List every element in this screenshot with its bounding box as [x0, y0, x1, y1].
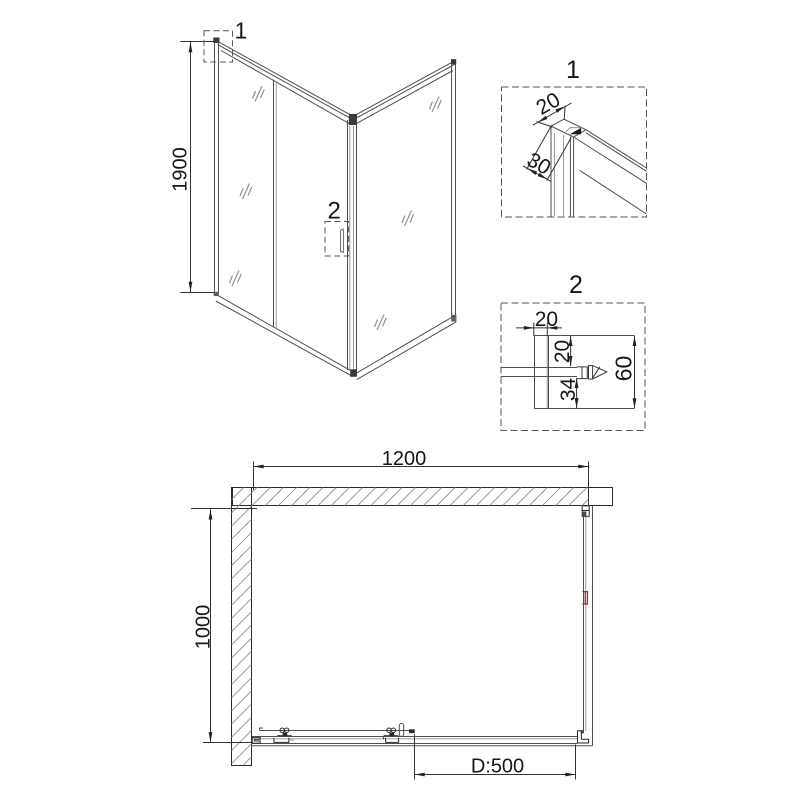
- svg-text:1000: 1000: [193, 605, 215, 650]
- svg-text:1: 1: [566, 56, 580, 84]
- svg-text:20: 20: [532, 88, 564, 120]
- svg-text:60: 60: [611, 356, 637, 382]
- svg-text:1200: 1200: [382, 448, 427, 470]
- svg-text:1: 1: [235, 18, 248, 44]
- svg-text:2: 2: [328, 198, 341, 225]
- svg-text:2: 2: [569, 271, 583, 299]
- svg-text:20: 20: [551, 340, 574, 363]
- svg-text:1900: 1900: [170, 147, 192, 192]
- svg-text:D:500: D:500: [471, 756, 524, 778]
- svg-text:20: 20: [535, 308, 558, 331]
- svg-text:34: 34: [557, 378, 580, 402]
